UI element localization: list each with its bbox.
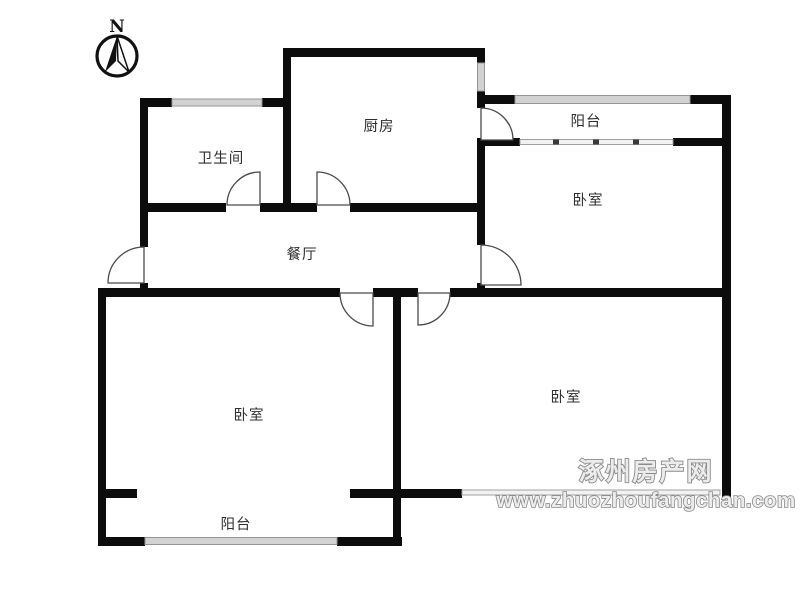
bedroom-bottom-left-door-arc <box>340 293 373 326</box>
watermark-site-url: www.zhuozhoufangchan.com <box>495 489 795 512</box>
north-compass: N <box>97 17 137 76</box>
entry-door-arc <box>108 247 144 283</box>
compass-needle-left-icon <box>105 36 117 72</box>
watermark-site-name: 涿州房产网 <box>578 457 713 486</box>
bedroom-top-right-door-arc <box>481 245 521 285</box>
room-label-bedroom-bottom-left: 卧室 <box>234 407 265 424</box>
floorplan-image: N 卫生间 厨房 阳台 卧室 餐厅 卧室 阳台 卧室 涿州房产网 www.zhu… <box>0 0 800 600</box>
compass-north-label: N <box>109 17 125 37</box>
watermark: 涿州房产网 www.zhuozhoufangchan.com <box>495 457 795 512</box>
room-label-kitchen: 厨房 <box>364 118 395 135</box>
kitchen-balcony-door-arc <box>481 108 513 140</box>
bathroom-door-arc <box>227 172 260 205</box>
floorplan-svg: N 卫生间 厨房 阳台 卧室 餐厅 卧室 阳台 卧室 涿州房产网 www.zhu… <box>0 0 800 600</box>
room-label-bathroom: 卫生间 <box>198 150 245 167</box>
room-label-balcony-bottom: 阳台 <box>221 516 252 533</box>
room-label-bedroom-bottom-right: 卧室 <box>551 389 582 406</box>
compass-needle-right-icon <box>117 36 129 72</box>
kitchen-door-arc <box>317 172 350 205</box>
room-label-bedroom-top-right: 卧室 <box>573 192 604 209</box>
room-label-dining: 餐厅 <box>287 246 318 263</box>
room-label-balcony-top: 阳台 <box>571 113 602 130</box>
bedroom-bottom-right-door-arc <box>418 293 450 325</box>
